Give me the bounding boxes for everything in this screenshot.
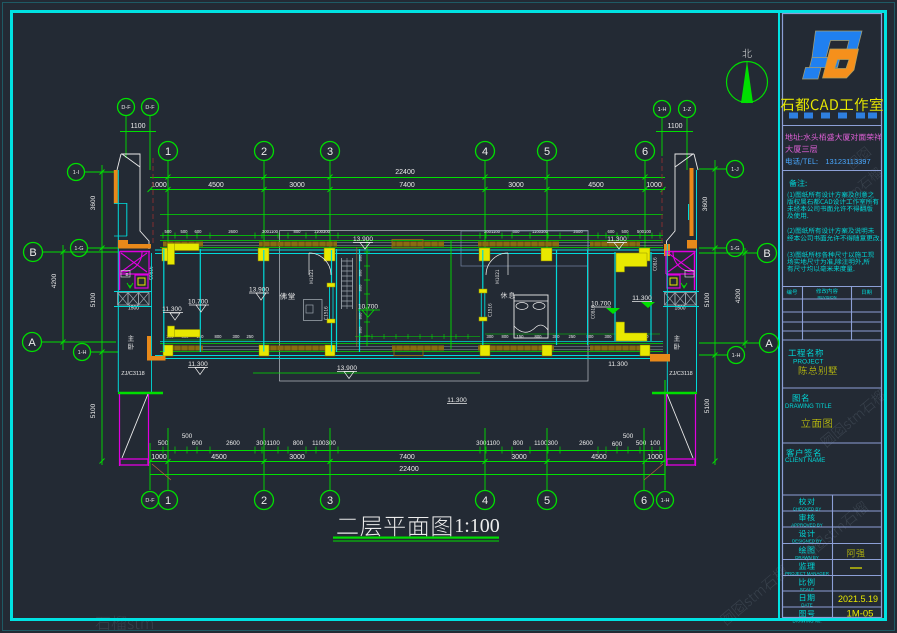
svg-text:1-H: 1-H (661, 498, 670, 504)
svg-text:DRAWING TITLE: DRAWING TITLE (785, 404, 832, 410)
svg-text:800: 800 (358, 269, 363, 276)
svg-text:6: 6 (642, 146, 648, 158)
svg-text:5: 5 (544, 495, 550, 507)
svg-text:2021.5.19: 2021.5.19 (838, 594, 878, 604)
svg-text:1M-05: 1M-05 (847, 609, 874, 620)
svg-text:3001100: 3001100 (256, 440, 280, 447)
svg-text:CLIENT NAME: CLIENT NAME (785, 458, 825, 464)
svg-text:4: 4 (482, 495, 488, 507)
svg-text:4200: 4200 (51, 273, 58, 288)
svg-text:11.300: 11.300 (607, 236, 627, 243)
svg-text:11.300: 11.300 (188, 361, 208, 368)
svg-text:250: 250 (569, 334, 577, 339)
svg-text:3: 3 (327, 146, 333, 158)
svg-text:5100: 5100 (90, 403, 97, 418)
svg-text:PROJECT: PROJECT (793, 359, 823, 366)
svg-text:2: 2 (261, 495, 267, 507)
svg-text:11.300: 11.300 (608, 361, 628, 368)
svg-text:A: A (28, 337, 36, 349)
svg-text:B: B (29, 247, 36, 259)
svg-text:1100300: 1100300 (312, 440, 336, 447)
svg-text:13.900: 13.900 (249, 287, 269, 294)
svg-text:500: 500 (158, 440, 169, 447)
svg-text:5100: 5100 (90, 292, 97, 307)
svg-text:800: 800 (293, 440, 304, 447)
svg-text:2600: 2600 (226, 440, 240, 447)
svg-text:1000: 1000 (151, 182, 167, 189)
svg-text:22400: 22400 (399, 466, 419, 473)
svg-text:600: 600 (608, 229, 616, 234)
svg-text:DATE: DATE (801, 602, 812, 607)
svg-text:5: 5 (544, 146, 550, 158)
svg-text:DESIGNED BY: DESIGNED BY (792, 538, 822, 543)
svg-text:3001100: 3001100 (476, 440, 500, 447)
svg-text:D-F: D-F (145, 105, 155, 111)
svg-text:2600: 2600 (228, 229, 238, 234)
svg-text:3: 3 (327, 495, 333, 507)
svg-text:6: 6 (641, 495, 647, 507)
svg-text:5100: 5100 (704, 398, 711, 413)
svg-text:800: 800 (358, 284, 363, 291)
svg-text:B: B (763, 248, 770, 260)
svg-text:7400: 7400 (399, 182, 415, 189)
svg-text:800: 800 (215, 334, 223, 339)
svg-text:1100300: 1100300 (534, 440, 558, 447)
svg-text:1-Z: 1-Z (683, 107, 692, 113)
svg-text:3001100: 3001100 (262, 229, 279, 234)
svg-text:13.900: 13.900 (337, 365, 357, 372)
svg-text:REVISION: REVISION (817, 295, 836, 300)
svg-text:3000: 3000 (289, 454, 305, 461)
svg-text:300: 300 (233, 334, 241, 339)
svg-text:1000: 1000 (646, 182, 662, 189)
svg-text:1100300: 1100300 (314, 229, 331, 234)
svg-text:800: 800 (358, 254, 363, 261)
svg-text:1-H: 1-H (732, 353, 741, 359)
svg-text:1-G: 1-G (74, 246, 83, 252)
svg-text:10.700: 10.700 (188, 299, 208, 306)
svg-text:13123113397: 13123113397 (825, 157, 870, 166)
svg-text:1-H: 1-H (78, 350, 87, 356)
svg-text:600: 600 (195, 229, 203, 234)
svg-text:800: 800 (513, 229, 521, 234)
svg-text:1-H: 1-H (658, 107, 667, 113)
svg-text:1: 1 (165, 146, 171, 158)
svg-text:22400: 22400 (395, 169, 415, 176)
svg-text:500: 500 (165, 229, 173, 234)
svg-text:250: 250 (247, 334, 255, 339)
svg-text:1100: 1100 (130, 123, 145, 130)
svg-text:4500: 4500 (588, 182, 604, 189)
svg-text:300: 300 (605, 334, 613, 339)
svg-text:ZJ/C3118: ZJ/C3118 (121, 371, 144, 377)
svg-text:4200: 4200 (735, 288, 742, 303)
svg-text:1:100: 1:100 (454, 515, 500, 537)
svg-text:500: 500 (636, 440, 647, 447)
svg-text:13.900: 13.900 (353, 236, 373, 243)
svg-text:11.300: 11.300 (162, 306, 182, 313)
svg-text:CHECKED BY: CHECKED BY (793, 506, 822, 511)
svg-text:800: 800 (358, 326, 363, 333)
svg-text:4500: 4500 (211, 454, 227, 461)
svg-text:1-G: 1-G (730, 246, 739, 252)
svg-text:1000: 1000 (647, 454, 663, 461)
svg-text:ZJ/C3118: ZJ/C3118 (669, 371, 692, 377)
svg-text:1100300: 1100300 (532, 229, 549, 234)
svg-text:1: 1 (165, 495, 171, 507)
svg-text:3000: 3000 (289, 182, 305, 189)
svg-text:10.700: 10.700 (591, 301, 611, 308)
svg-text:4500: 4500 (208, 182, 224, 189)
svg-text:2600: 2600 (573, 229, 583, 234)
svg-text:100: 100 (650, 440, 661, 447)
svg-text:500: 500 (623, 433, 634, 440)
svg-text:D-F: D-F (145, 498, 155, 504)
svg-text:7400: 7400 (399, 454, 415, 461)
svg-text:800: 800 (294, 229, 302, 234)
svg-text:3000: 3000 (508, 182, 524, 189)
svg-text:5100: 5100 (704, 292, 711, 307)
svg-text:D-F: D-F (121, 105, 131, 111)
svg-text:300: 300 (487, 334, 495, 339)
svg-text:600: 600 (192, 440, 203, 447)
svg-text:11.300: 11.300 (447, 397, 467, 404)
svg-text:DRAWN BY: DRAWN BY (795, 555, 819, 560)
svg-text:1100: 1100 (667, 123, 682, 130)
svg-text:3600: 3600 (702, 196, 709, 211)
svg-text:1-J: 1-J (731, 167, 739, 173)
svg-text:10.700: 10.700 (358, 304, 378, 311)
svg-text:3600: 3600 (90, 195, 97, 210)
svg-text:11.300: 11.300 (632, 295, 652, 302)
svg-text:500100: 500100 (637, 229, 652, 234)
svg-text:A: A (765, 338, 773, 350)
svg-text:500: 500 (182, 433, 193, 440)
svg-text:4500: 4500 (591, 454, 607, 461)
svg-text:2: 2 (261, 146, 267, 158)
svg-text:2600: 2600 (579, 440, 593, 447)
svg-text:800: 800 (502, 334, 510, 339)
svg-text:DRAWING No.: DRAWING No. (792, 618, 821, 623)
svg-text:800: 800 (513, 440, 524, 447)
svg-text:SCALE: SCALE (800, 587, 814, 592)
svg-text:1-I: 1-I (73, 170, 80, 176)
svg-text:3000: 3000 (511, 454, 527, 461)
svg-text:PROJECT MANAGER: PROJECT MANAGER (785, 571, 829, 576)
svg-text:APPROVED BY: APPROVED BY (791, 522, 823, 527)
svg-text:1000: 1000 (151, 454, 167, 461)
svg-text:800: 800 (358, 312, 363, 319)
svg-text:B: B (125, 272, 128, 277)
svg-text:4: 4 (482, 146, 488, 158)
svg-text:3001100: 3001100 (484, 229, 501, 234)
